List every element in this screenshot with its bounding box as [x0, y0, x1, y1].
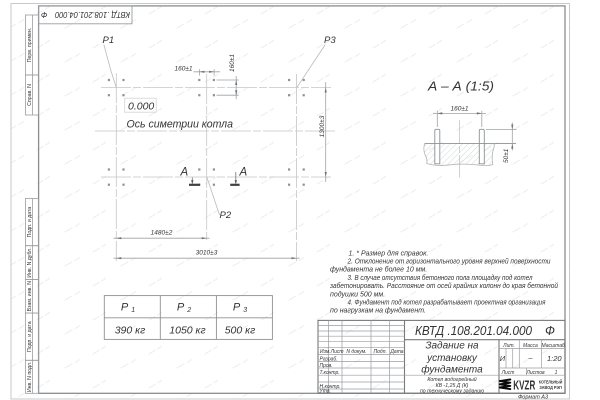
svg-text:Разраб.: Разраб.	[320, 356, 338, 362]
svg-text:Инв. N подл.: Инв. N подл.	[27, 362, 33, 393]
svg-text:160±1: 160±1	[174, 65, 192, 72]
svg-text:Подп. и дата: Подп. и дата	[27, 321, 33, 352]
svg-text:забетонировать. Расстояние от: забетонировать. Расстояние от осей крайн…	[329, 282, 558, 290]
svg-text:Формат А3: Формат А3	[518, 395, 549, 400]
svg-text:50±1: 50±1	[503, 148, 510, 163]
svg-text:Инв. N дубл.: Инв. N дубл.	[27, 247, 33, 277]
svg-text:КВТД .108.201.04.000: КВТД .108.201.04.000	[415, 324, 532, 338]
svg-text:Ось симетрии котла: Ось симетрии котла	[127, 119, 234, 131]
svg-text:N докум.: N докум.	[346, 349, 366, 355]
svg-text:по техническому заданию: по техническому заданию	[420, 388, 484, 394]
svg-text:1: 1	[555, 370, 558, 376]
svg-text:Ф: Ф	[545, 324, 555, 338]
svg-text:Задание на: Задание на	[425, 341, 479, 352]
svg-text:КВТД .108.201.04.000: КВТД .108.201.04.000	[54, 10, 130, 19]
svg-text:Лист: Лист	[501, 370, 515, 376]
svg-text:1050 кг: 1050 кг	[169, 325, 205, 337]
svg-text:фундамента: фундамента	[421, 364, 483, 376]
svg-text:И: И	[500, 354, 506, 363]
svg-text:160±1: 160±1	[229, 54, 236, 72]
svg-text:Перв. примен.: Перв. примен.	[27, 28, 33, 63]
svg-text:Справ. N: Справ. N	[27, 84, 33, 106]
svg-text:А – А (1:5): А – А (1:5)	[427, 79, 494, 94]
svg-text:0.000: 0.000	[128, 101, 154, 113]
svg-text:Дата: Дата	[389, 349, 403, 355]
svg-text:Т.контр.: Т.контр.	[320, 370, 340, 376]
svg-text:P3: P3	[324, 35, 336, 46]
svg-text:500 кг: 500 кг	[225, 325, 256, 337]
svg-text:160±1: 160±1	[450, 106, 468, 113]
svg-text:Лит.: Лит.	[502, 343, 515, 349]
svg-text:установку: установку	[426, 353, 478, 364]
svg-text:2. Отклонение от горизонтально: 2. Отклонение от горизонтального уровня …	[347, 258, 551, 266]
svg-text:Подп. и дата: Подп. и дата	[27, 207, 33, 238]
svg-text:390 кг: 390 кг	[115, 325, 146, 337]
svg-text:–: –	[527, 353, 533, 362]
svg-text:Листов: Листов	[525, 370, 545, 376]
svg-text:Взам. инв. N: Взам. инв. N	[27, 281, 33, 312]
svg-text:Подп.: Подп.	[374, 349, 387, 355]
svg-text:P1: P1	[103, 35, 115, 46]
svg-text:3. В случае отсутствия бетонно: 3. В случае отсутствия бетонного пола пл…	[348, 274, 533, 282]
svg-text:3010±3: 3010±3	[196, 250, 218, 257]
svg-text:1. * Размер для справок.: 1. * Размер для справок.	[349, 249, 429, 257]
svg-text:1480±2: 1480±2	[151, 230, 173, 237]
svg-text:А: А	[180, 167, 189, 179]
svg-text:P2: P2	[220, 210, 232, 221]
svg-text:фундамента не более 10 мм.: фундамента не более 10 мм.	[330, 266, 427, 274]
svg-text:Изм.Лист: Изм.Лист	[320, 349, 344, 355]
svg-text:KVZR: KVZR	[513, 377, 535, 392]
svg-text:А: А	[239, 167, 248, 179]
svg-text:1:20: 1:20	[547, 354, 562, 363]
svg-text:ЗАВОД РЭП: ЗАВОД РЭП	[539, 385, 562, 391]
svg-text:Утв.: Утв.	[320, 389, 331, 395]
svg-text:подушки 500 мм.: подушки 500 мм.	[330, 290, 385, 298]
svg-text:1300±3: 1300±3	[319, 115, 326, 137]
svg-text:Масштаб: Масштаб	[542, 343, 566, 349]
svg-text:Ф: Ф	[40, 10, 47, 19]
svg-text:Масса: Масса	[523, 343, 538, 349]
svg-text:по нагрузкам на фундамент.: по нагрузкам на фундамент.	[330, 307, 426, 315]
svg-text:4. Фундамент под котел разраба: 4. Фундамент под котел разрабатывает про…	[348, 299, 546, 307]
svg-text:Пров.: Пров.	[320, 363, 333, 369]
